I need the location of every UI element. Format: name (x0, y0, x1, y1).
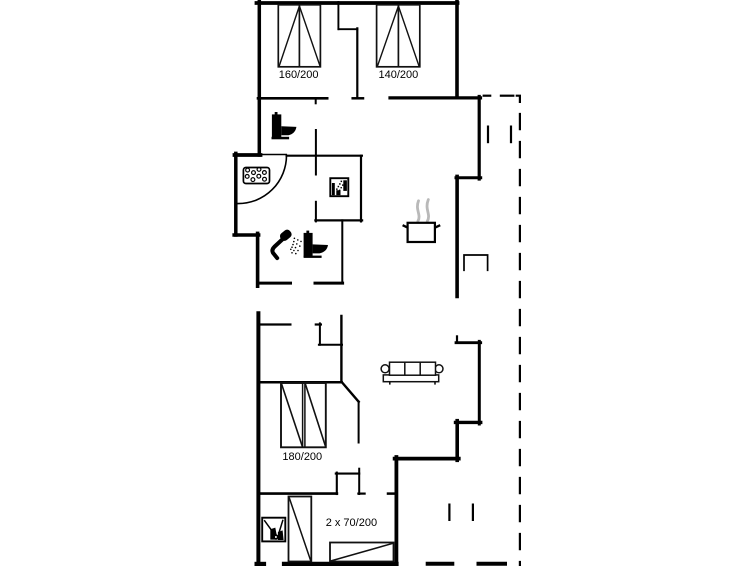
svg-text:160/200: 160/200 (279, 69, 319, 81)
svg-text:140/200: 140/200 (379, 69, 419, 81)
svg-text:2 x 70/200: 2 x 70/200 (326, 517, 377, 529)
svg-text:180/200: 180/200 (282, 451, 322, 463)
